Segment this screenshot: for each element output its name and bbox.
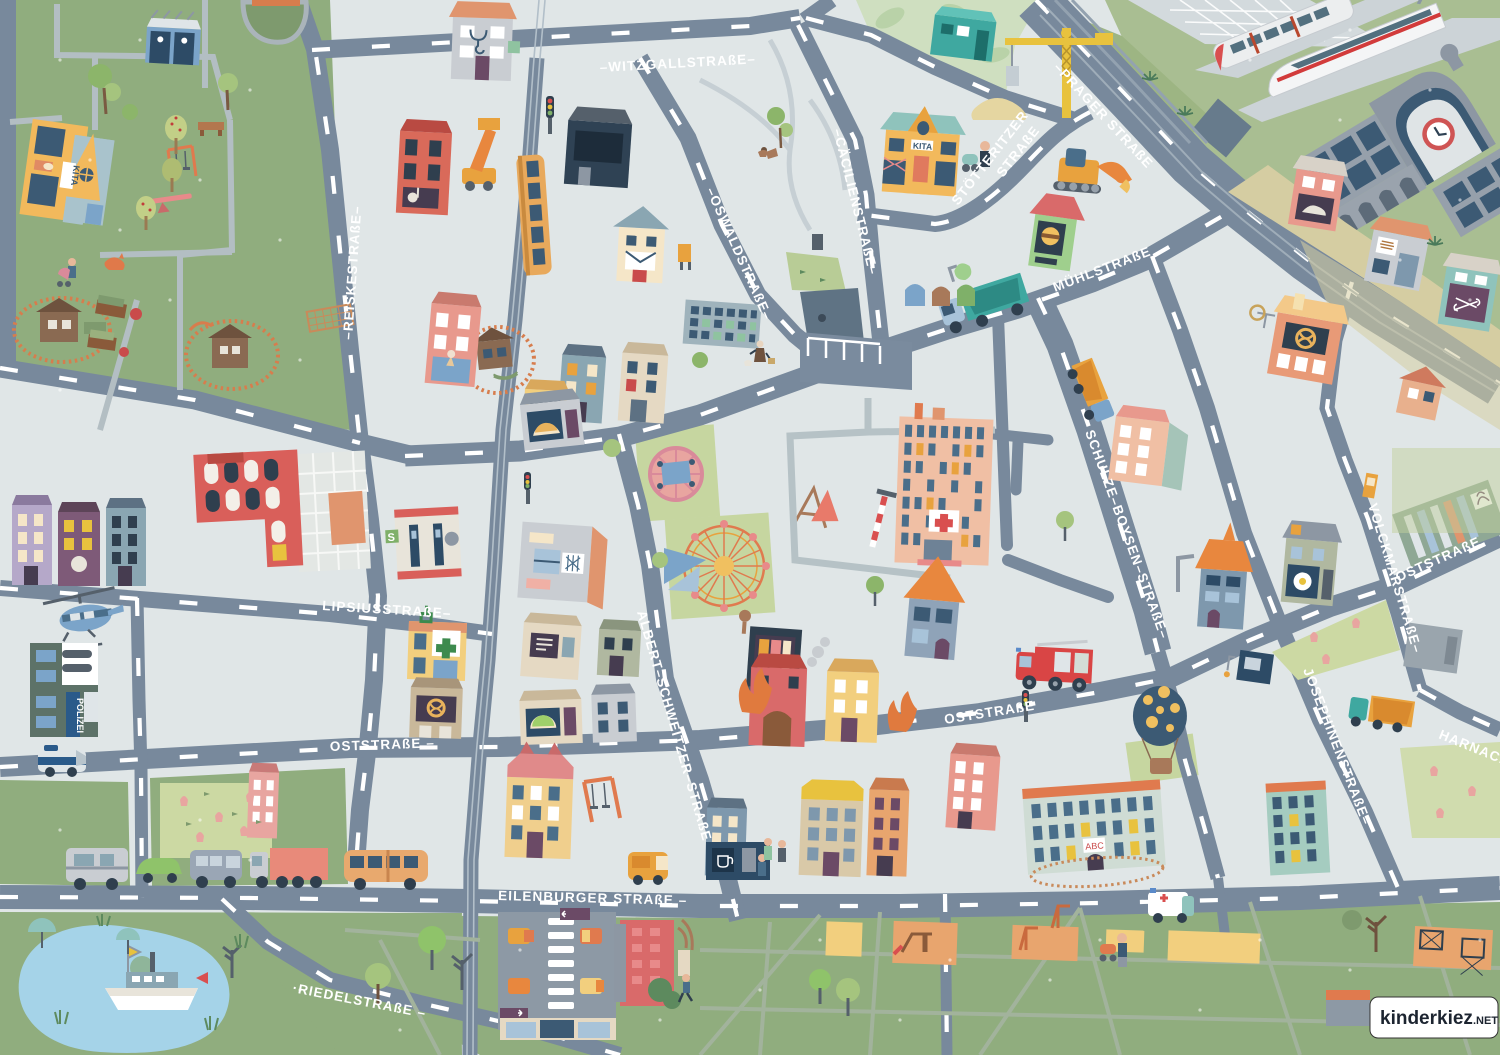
svg-text:ABC: ABC [1085, 840, 1105, 851]
svg-text:S: S [387, 532, 395, 544]
svg-text:KITA: KITA [913, 140, 933, 151]
svg-text:POLIZEI: POLIZEI [75, 698, 85, 733]
